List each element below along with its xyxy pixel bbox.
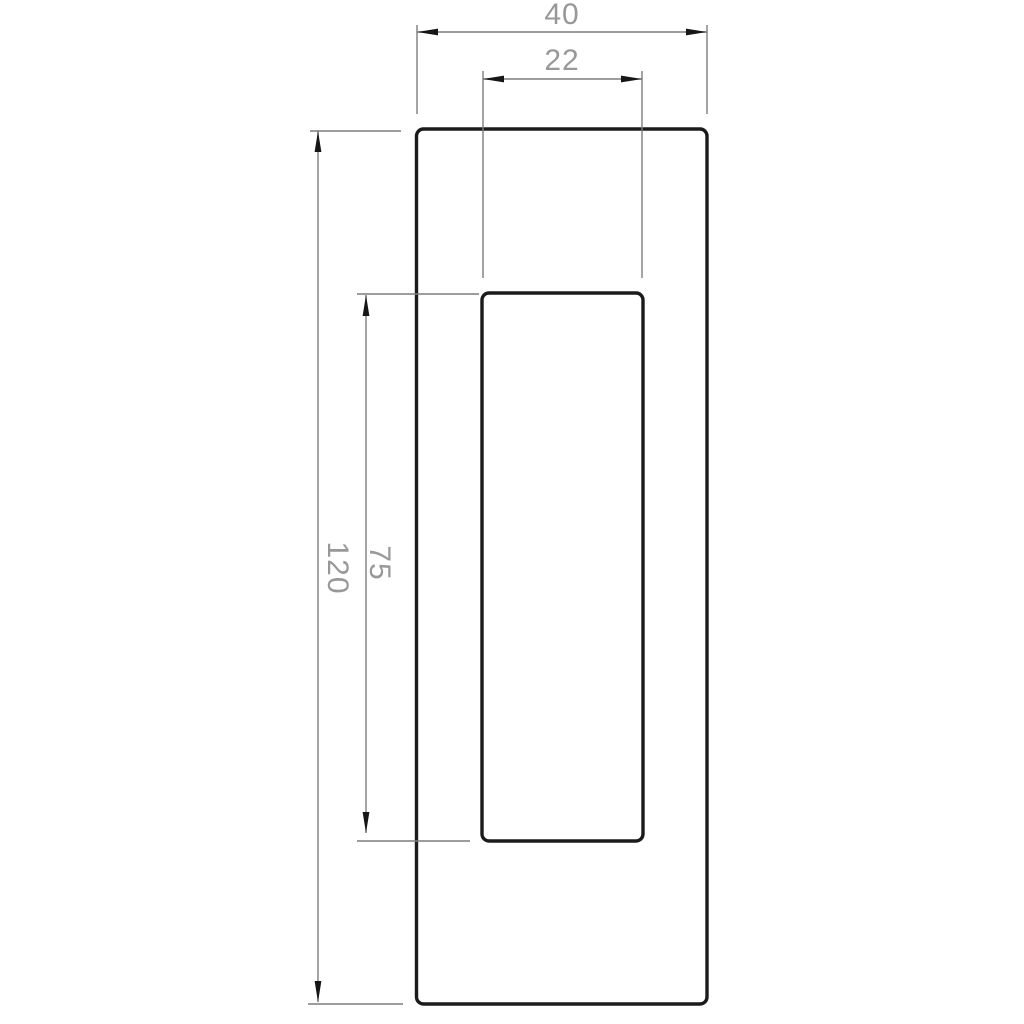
arrowhead-bottom [315, 981, 322, 1002]
technical-drawing: 40 22 120 75 [0, 0, 1024, 1024]
arrowhead-right [686, 29, 707, 36]
arrowhead-left [483, 76, 504, 83]
inner-rectangle [482, 293, 643, 841]
dimension-label-outer-height: 120 [322, 508, 352, 628]
arrowhead-right [621, 76, 642, 83]
dimension-label-inner-width: 22 [522, 46, 602, 76]
dimension-label-outer-width: 40 [522, 0, 602, 30]
arrowhead-bottom [363, 812, 370, 833]
outer-rectangle [417, 129, 708, 1004]
dimension-label-inner-height: 75 [364, 503, 394, 623]
arrowhead-top [363, 295, 370, 316]
arrowhead-top [315, 131, 322, 152]
dimension-inner-width [483, 71, 642, 278]
drawing-canvas [0, 0, 1024, 1024]
arrowhead-left [417, 29, 438, 36]
